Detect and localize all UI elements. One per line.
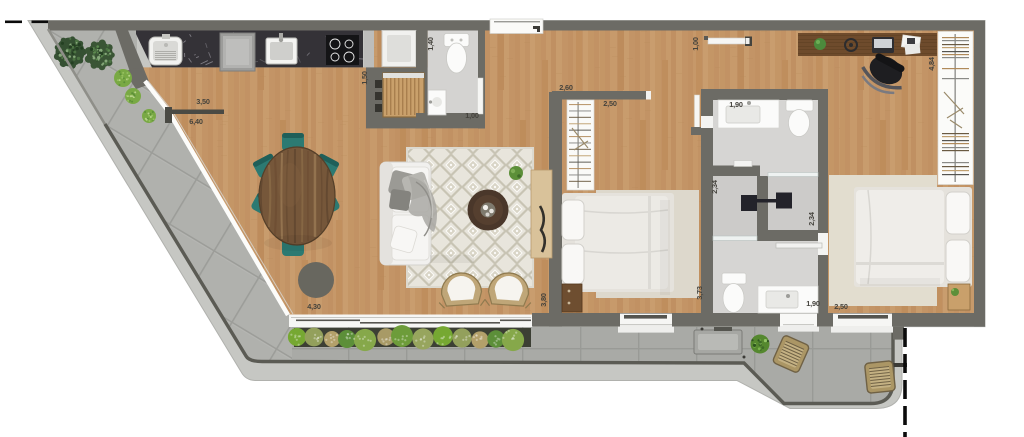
- svg-text:2,34: 2,34: [710, 179, 719, 194]
- svg-text:1,00: 1,00: [465, 111, 479, 120]
- svg-text:2,34: 2,34: [807, 211, 816, 226]
- svg-text:4,84: 4,84: [927, 56, 936, 71]
- svg-text:1,50: 1,50: [360, 71, 369, 85]
- svg-text:3,73: 3,73: [695, 286, 704, 300]
- svg-text:2,50: 2,50: [834, 302, 848, 311]
- svg-text:1,00: 1,00: [691, 37, 700, 51]
- svg-text:3,50: 3,50: [196, 97, 210, 106]
- svg-text:6,40: 6,40: [189, 117, 203, 126]
- svg-text:1,40: 1,40: [426, 37, 435, 51]
- svg-text:3,80: 3,80: [539, 293, 548, 307]
- svg-text:1,90: 1,90: [729, 100, 743, 109]
- svg-text:2,60: 2,60: [559, 83, 573, 92]
- svg-text:4,30: 4,30: [307, 302, 321, 311]
- svg-text:2,50: 2,50: [603, 99, 617, 108]
- svg-text:1,90: 1,90: [806, 299, 820, 308]
